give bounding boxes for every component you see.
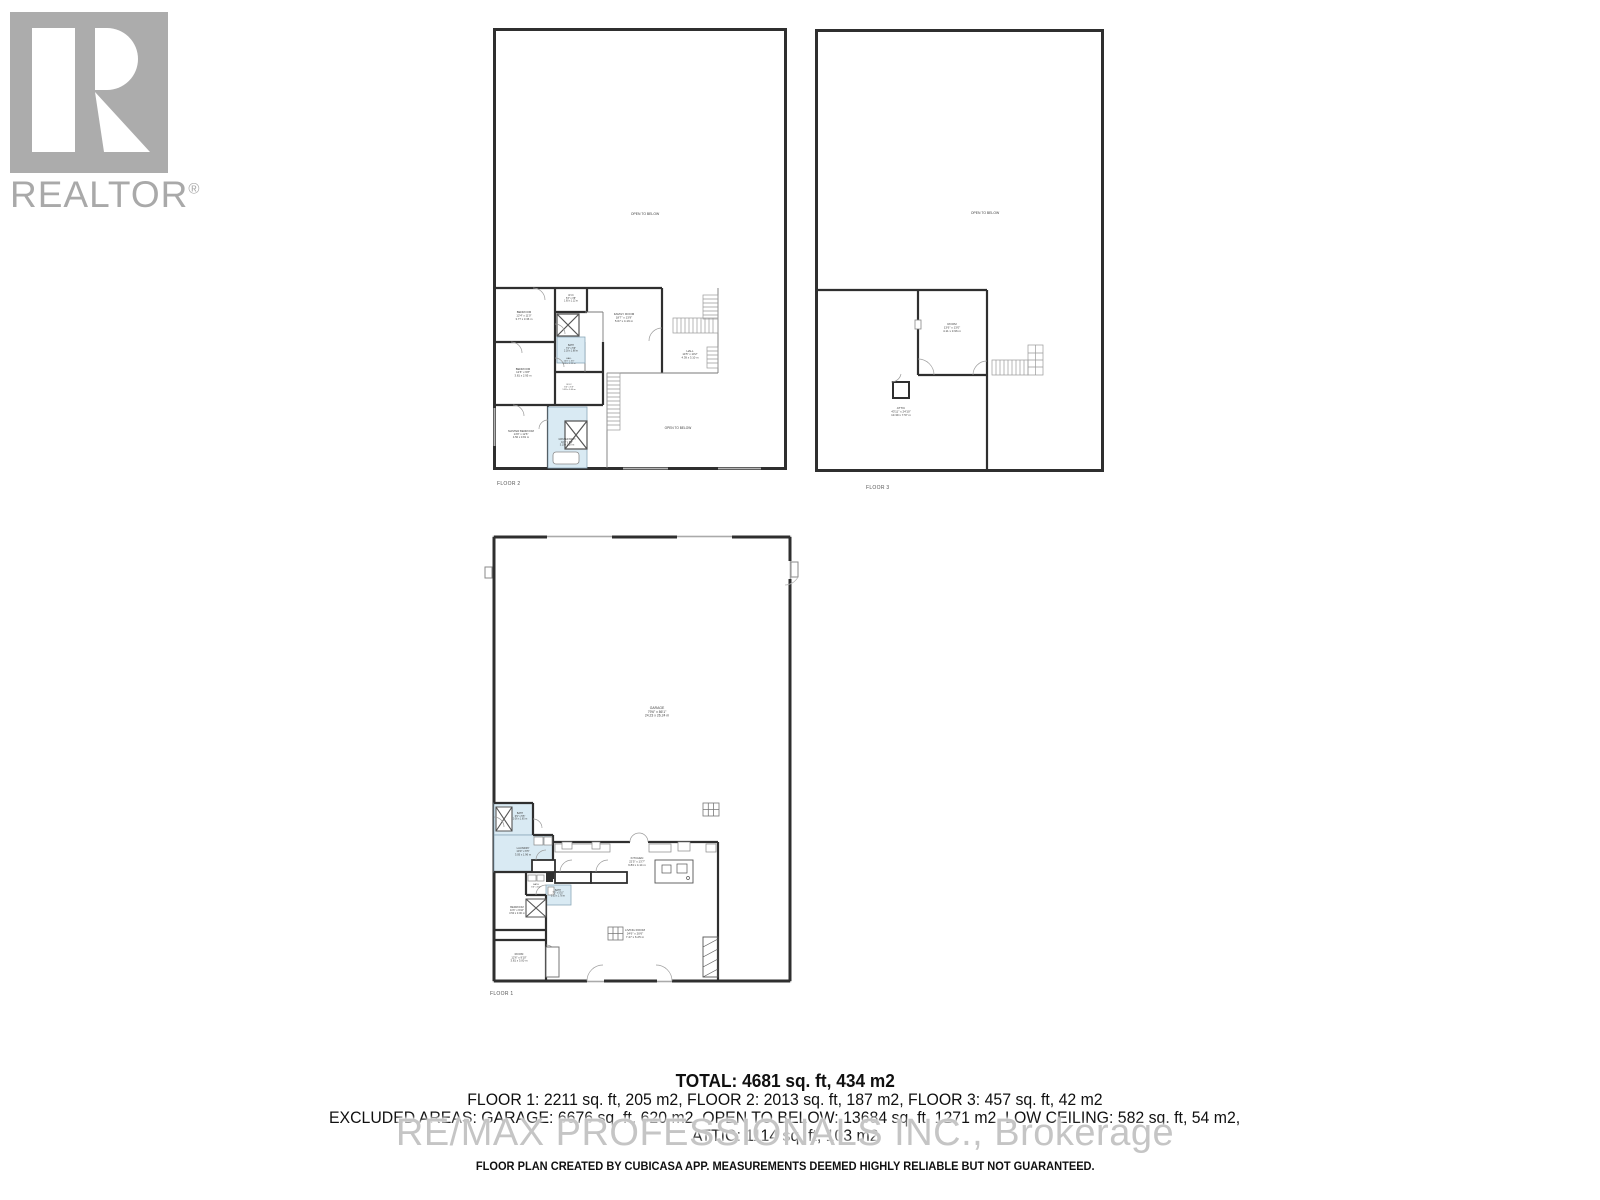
floor1-caption: FLOOR 1 [490, 991, 514, 997]
floor2-plan: OPEN TO BELOW BEDROOM12'4" x 11'0"3.77 x… [493, 28, 787, 470]
room-label-bedroom: BEDROOM11'6" x 9'10"3.50 x 3.00 m [509, 905, 525, 915]
room-label-open-below: OPEN TO BELOW [971, 211, 1000, 215]
registered-mark: ® [188, 181, 200, 198]
room-label-bedroom2: BEDROOM12'6" x 9'8"3.81 x 2.95 m [515, 367, 533, 377]
realtor-logo-icon [10, 12, 168, 173]
summary-floors: FLOOR 1: 2211 sq. ft, 205 m2, FLOOR 2: 2… [0, 1091, 1570, 1110]
room-label-living-room: LIVING ROOM24'6" x 20'6"7.47 x 6.25 m [625, 928, 646, 939]
summary-total: TOTAL: 4681 sq. ft, 434 m2 [0, 1071, 1570, 1092]
floorplan-page: REALTOR® [0, 0, 1600, 1200]
floor3-hatch-box [893, 382, 909, 398]
disclaimer-text: FLOOR PLAN CREATED BY CUBICASA APP. MEAS… [0, 1159, 1570, 1173]
floor1-plan: GARAGE79'6" x 86'1"24.23 x 26.24 m BATH6… [492, 535, 792, 983]
floor3-plan: OPEN TO BELOW ROOM13'6" x 13'0"4.11 x 3.… [815, 29, 1104, 472]
room-label-laundry: LAUNDRY10'0" x 6'5"3.05 x 1.96 m [515, 846, 532, 856]
floor3-caption: FLOOR 3 [866, 485, 890, 491]
floor2-caption: FLOOR 2 [497, 481, 521, 487]
brokerage-watermark: RE/MAX PROFESSIONALS INC., Brokerage [0, 1112, 1570, 1155]
floor3-room-window [915, 320, 921, 329]
room-label-bedroom1: BEDROOM12'4" x 11'0"3.77 x 3.36 m [516, 310, 534, 321]
floor2-bathtub [553, 452, 579, 464]
floor1-entry-closet [546, 947, 559, 977]
realtor-logo: REALTOR® [10, 12, 200, 213]
room-label-open-below-top: OPEN TO BELOW [631, 212, 660, 216]
floor2-outer-wall [495, 30, 786, 469]
floor3-outer-wall [817, 31, 1103, 471]
room-label-family-room: FAMILY ROOM18'7" x 13'9"5.67 x 4.19 m [614, 312, 635, 323]
room-label-open-below-bottom: OPEN TO BELOW [665, 426, 692, 430]
floor1-wall-block [546, 872, 553, 882]
realtor-wordmark: REALTOR® [10, 176, 200, 213]
floor1-left-door [485, 567, 492, 578]
